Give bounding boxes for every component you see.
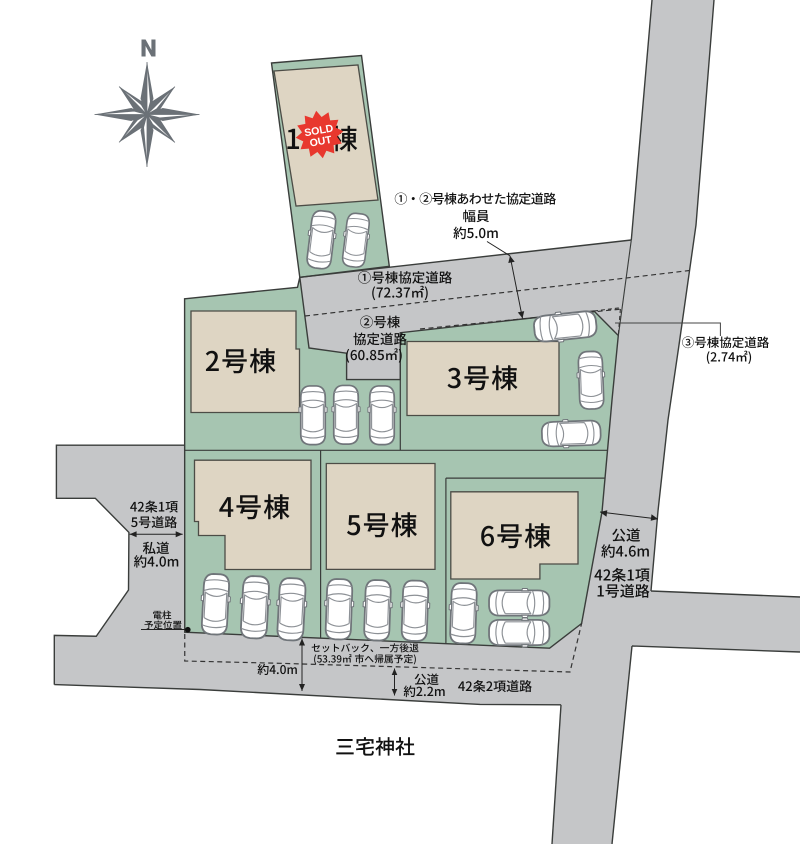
svg-text:予定位置: 予定位置: [144, 618, 183, 632]
svg-text:約2.2m: 約2.2m: [403, 681, 445, 700]
svg-text:6号棟: 6号棟: [480, 515, 552, 554]
svg-text:三宅神社: 三宅神社: [335, 731, 415, 760]
svg-text:5号棟: 5号棟: [346, 504, 418, 543]
svg-text:(2.74㎡): (2.74㎡): [706, 347, 753, 366]
svg-text:約5.0m: 約5.0m: [453, 222, 499, 242]
svg-text:約4.6m: 約4.6m: [601, 541, 650, 562]
svg-text:1号道路: 1号道路: [596, 581, 650, 602]
svg-text:3号棟: 3号棟: [447, 357, 519, 396]
svg-text:(72.37㎡): (72.37㎡): [371, 282, 429, 302]
svg-text:42条2項道路: 42条2項道路: [458, 676, 532, 695]
svg-text:4号棟: 4号棟: [219, 486, 291, 525]
svg-text:(53.39㎡ 市へ帰属予定): (53.39㎡ 市へ帰属予定): [313, 652, 417, 666]
svg-text:約4.0m: 約4.0m: [257, 661, 298, 678]
svg-text:2号棟: 2号棟: [205, 340, 277, 379]
svg-text:(60.85㎡): (60.85㎡): [345, 344, 403, 364]
svg-text:5号道路: 5号道路: [131, 512, 177, 531]
svg-text:約4.0m: 約4.0m: [134, 551, 180, 571]
